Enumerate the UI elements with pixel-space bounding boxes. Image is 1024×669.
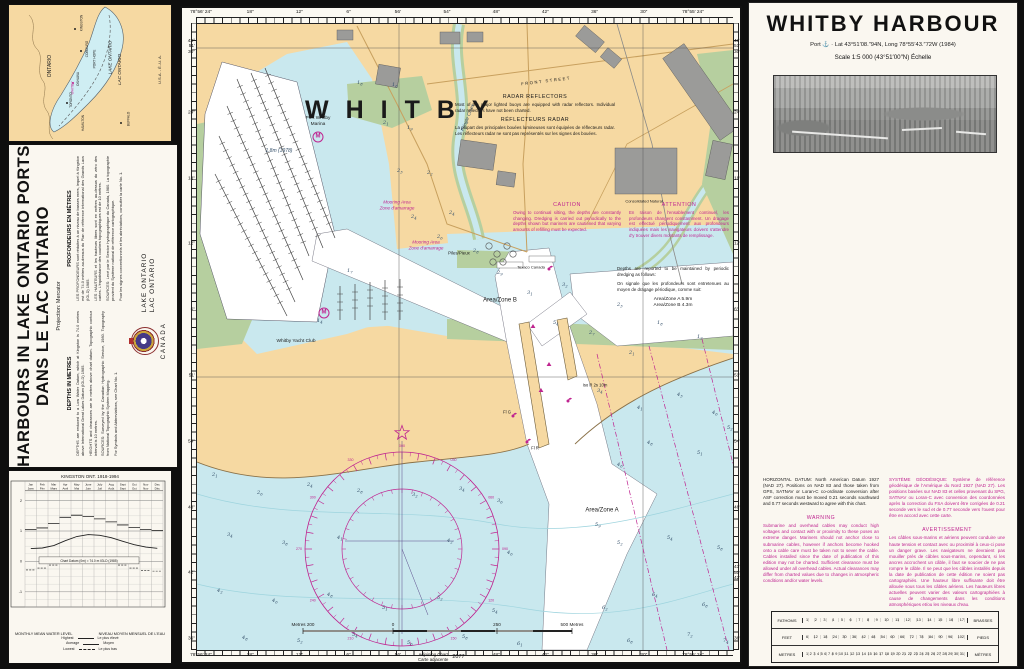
lon-label-bottom: 78°55′ 24″ bbox=[682, 653, 704, 658]
building bbox=[440, 32, 460, 44]
attention-note: ATTENTIONEn raison de l'ensablement cont… bbox=[629, 202, 729, 243]
svg-text:Sept: Sept bbox=[120, 487, 126, 491]
hydrograph-chart: 210-1JanJanvFebFévMarMarsAprAvrilMayMaiJ… bbox=[9, 479, 167, 627]
yacht-club: Whitby Yacht Club bbox=[276, 339, 315, 345]
svg-text:Avril: Avril bbox=[62, 487, 68, 491]
lat-label-right: 12″ bbox=[734, 242, 745, 247]
svg-text:Oct: Oct bbox=[132, 487, 137, 491]
svg-text:030: 030 bbox=[451, 458, 457, 462]
lon-label-bottom: 56′ bbox=[395, 653, 401, 658]
lat-label-left: 42″ bbox=[184, 571, 195, 576]
depth-sounding: 58 bbox=[462, 634, 468, 641]
lat-label-left: 43° 51′ 30″ bbox=[184, 39, 195, 55]
note-symbols: For Symbols and Abbreviations, see Chart… bbox=[114, 311, 119, 456]
note-depths: DEPTHS are reduced to a Low Water Datum,… bbox=[76, 311, 86, 456]
svg-text:270: 270 bbox=[296, 547, 302, 551]
svg-text:Fév: Fév bbox=[40, 487, 45, 491]
adjoining-chart-number: 2077 bbox=[452, 654, 464, 661]
depth-sounding: 26 bbox=[256, 490, 263, 497]
series-title: HARBOURS IN LAKE ONTARIO PORTS DANS LE L… bbox=[15, 145, 53, 467]
depth-sounding: 68 bbox=[627, 638, 633, 645]
depth-sounding: 14 bbox=[317, 318, 323, 325]
depths-heading-en: DEPTHS IN METRES bbox=[67, 311, 73, 456]
lon-label-top: 78°56′ 24″ bbox=[190, 10, 212, 15]
svg-text:Déc: Déc bbox=[155, 487, 161, 491]
scalebar-label: 0 bbox=[392, 622, 395, 627]
marina-symbol: M bbox=[319, 308, 330, 319]
breakwater-in-photo bbox=[792, 131, 888, 140]
svg-text:Juil: Juil bbox=[98, 487, 103, 491]
lon-label-bottom: 78°56′ 24″ bbox=[190, 653, 212, 658]
lat-label-left: 18″ bbox=[184, 176, 195, 181]
lat-label-left: 12″ bbox=[184, 242, 195, 247]
depth-sounding: 52 bbox=[617, 540, 623, 547]
main-chart-panel: 78°56′ 24″18″12″6″56′54″48″42″36″30″78°5… bbox=[180, 6, 742, 664]
depth-sounding: 34 bbox=[227, 532, 233, 539]
depth-sounding: 17 bbox=[347, 268, 353, 275]
lat-label-left: 36″ bbox=[184, 637, 195, 642]
depth-sounding: 56 bbox=[407, 640, 413, 647]
depth-sounding: 28 bbox=[356, 488, 363, 495]
water-level-hydrograph-panel: KINGSTON ONT. 1918-1994 210-1JanJanvFebF… bbox=[8, 470, 172, 664]
metres-row: METRES 123456789101112131415161718192021… bbox=[772, 646, 998, 662]
svg-text:330: 330 bbox=[348, 458, 354, 462]
pier-in-photo-2 bbox=[956, 131, 986, 136]
depth-sounding: 31 bbox=[527, 290, 533, 297]
depth-sounding: 46 bbox=[616, 462, 623, 469]
light-flr: Fl R bbox=[531, 445, 539, 450]
depth-sounding: 54 bbox=[492, 608, 498, 615]
pier-in-photo bbox=[902, 127, 942, 131]
pier-2 bbox=[529, 256, 555, 262]
lon-label-top: 54″ bbox=[443, 10, 450, 15]
depth-sounding: 34 bbox=[597, 388, 603, 395]
svg-text:300: 300 bbox=[310, 496, 316, 500]
scalebar-label: Metres 200 bbox=[292, 622, 315, 627]
depth-sounding: 64 bbox=[652, 592, 658, 599]
warning-heading: WARNING bbox=[763, 515, 879, 521]
depth-sounding: 27 bbox=[588, 330, 595, 337]
svg-text:060: 060 bbox=[488, 496, 494, 500]
inset-place-label: LAKE ONTARIO bbox=[107, 41, 112, 75]
canada-label: CANADA bbox=[161, 322, 167, 359]
lon-label-top: 30″ bbox=[640, 10, 647, 15]
inset-place-label: U.S.A. - É.-U. A. bbox=[157, 55, 162, 84]
depth-1978: 1.8m (1978) bbox=[266, 148, 293, 154]
lon-label-bottom: 18″ bbox=[247, 653, 254, 658]
depth-sounding: 43 bbox=[676, 392, 683, 399]
aerial-photo bbox=[773, 75, 997, 153]
lon-label-bottom: 36″ bbox=[591, 653, 598, 658]
inset-place-label: LAC ONTARIO bbox=[117, 54, 122, 85]
building bbox=[467, 32, 483, 42]
zone-a: Area/Zone A bbox=[585, 507, 618, 515]
lat-label-right: 48″ bbox=[734, 505, 745, 510]
depth-sounding: 24 bbox=[410, 214, 417, 221]
inset-place-label: PORT HOPE bbox=[92, 50, 96, 69]
lat-label-right: 24″ bbox=[734, 110, 745, 115]
lon-label-top: 6″ bbox=[346, 10, 350, 15]
adjoining-chart-note: Adjoining Chart Carte adjacente 2077 bbox=[418, 652, 465, 662]
depth-sounding: 32 bbox=[412, 492, 418, 499]
depth-sounding: 21 bbox=[628, 350, 635, 357]
lat-label-left: 54″ bbox=[184, 439, 195, 444]
depth-sounding: 19 bbox=[407, 125, 413, 132]
lon-label-top: 48″ bbox=[493, 10, 500, 15]
depth-sounding: 41 bbox=[636, 405, 643, 412]
inset-place-label: BUFFALO bbox=[126, 112, 130, 127]
warning-body: Submarine and overhead cables may conduc… bbox=[763, 523, 879, 584]
depth-sounding: 46 bbox=[711, 410, 718, 417]
svg-text:0: 0 bbox=[20, 560, 22, 564]
depth-sounding: 22 bbox=[426, 170, 433, 177]
building bbox=[457, 140, 496, 171]
piles: Piles/Pieux bbox=[448, 250, 470, 256]
note-profondeurs: LES PROFONDEURS sont réduites à un nivea… bbox=[76, 156, 91, 301]
depth-sounding: 12 bbox=[697, 334, 703, 341]
light-iso: Iso R 2s 10m bbox=[583, 382, 608, 387]
note-hauteurs: LES HAUTEURS et les hauteurs libres sont… bbox=[94, 156, 104, 301]
marina-symbol: M bbox=[313, 132, 324, 143]
light-flg: Fl G bbox=[503, 409, 511, 414]
lat-label-right: 6″ bbox=[734, 308, 745, 313]
lat-label-right: 43° 51′ 30″ bbox=[734, 39, 745, 55]
chart-datum-note: Chart Datum (0m) = 74.0 m IGLD (1985) bbox=[60, 559, 117, 563]
depth-sounding: 62 bbox=[602, 605, 608, 612]
depth-sounding: 51 bbox=[382, 605, 388, 612]
lat-label-right: 51′ bbox=[734, 373, 745, 378]
lake-ontario-label: LAKE ONTARIO LAC ONTARIO bbox=[141, 253, 158, 313]
svg-text:Juin: Juin bbox=[86, 487, 92, 491]
unit-conversion-scale: FATHOMS 1234567891011121314151617 BRASSE… bbox=[771, 611, 999, 663]
depth-sounding: 42 bbox=[216, 588, 223, 595]
depth-sounding: 48 bbox=[326, 592, 333, 599]
lat-label-left: 6″ bbox=[184, 308, 195, 313]
inset-place-label: KINGSTON bbox=[79, 15, 83, 32]
light-symbol bbox=[512, 415, 515, 418]
svg-text:-1: -1 bbox=[19, 590, 22, 594]
lon-label-bottom: 42″ bbox=[542, 653, 549, 658]
depth-sounding: 51 bbox=[697, 450, 703, 457]
light-symbol bbox=[526, 441, 529, 444]
depth-sounding: 24 bbox=[448, 210, 455, 217]
fathoms-row: FATHOMS 1234567891011121314151617 BRASSE… bbox=[772, 612, 998, 629]
horizontal-datum-note: HORIZONTAL DATUM: North American Datum 1… bbox=[763, 477, 879, 507]
depths-heading-fr: PROFONDEURS EN MÈTRES bbox=[67, 156, 73, 301]
systeme-geodesique-note: SYSTÈME GÉODÉSIQUE: Système de référence… bbox=[889, 477, 1005, 519]
depth-sounding: 54 bbox=[553, 320, 559, 327]
depth-sounding: 46 bbox=[506, 550, 513, 557]
chart-scale: Scale 1:5 000 (43°51′00″N) Échelle bbox=[749, 54, 1017, 61]
depth-sounding: 34 bbox=[459, 486, 465, 493]
building bbox=[496, 171, 516, 187]
depth-sounding: 52 bbox=[297, 638, 303, 645]
svg-text:240: 240 bbox=[310, 599, 316, 603]
lat-label-right: 36″ bbox=[734, 637, 745, 642]
depth-sounding: 42 bbox=[446, 538, 453, 545]
depth-sounding: 46 bbox=[271, 598, 278, 605]
svg-text:1: 1 bbox=[20, 529, 22, 533]
note-sources: SOURCES: Surveyed by the Canadian Hydrog… bbox=[101, 311, 111, 456]
lon-label-top: 42″ bbox=[542, 10, 549, 15]
depth-sounding: 68 bbox=[702, 602, 708, 609]
depth-sounding: 54 bbox=[667, 535, 673, 542]
lon-label-bottom: 30″ bbox=[640, 653, 647, 658]
port-whitby-marina: Port Whitby Marina bbox=[306, 116, 331, 128]
zone-b: Area/Zone B bbox=[483, 297, 517, 305]
svg-text:Janv: Janv bbox=[28, 487, 35, 491]
note-sources-fr: SOURCES: Levé par le Service hydrographi… bbox=[106, 156, 116, 301]
depth-sounding: 74 bbox=[723, 638, 729, 645]
light-symbol bbox=[567, 400, 570, 403]
svg-text:Août: Août bbox=[108, 487, 114, 491]
depth-sounding: 54 bbox=[352, 632, 358, 639]
depth-sounding: 16 bbox=[392, 82, 398, 89]
scalebar-label: 250 bbox=[493, 622, 501, 627]
svg-text:120: 120 bbox=[488, 599, 494, 603]
scalebar-label: 500 Metres bbox=[561, 622, 585, 627]
building bbox=[615, 148, 677, 194]
lat-label-right: 43° 50′ 42″ bbox=[734, 565, 745, 581]
depth-sounding: 18 bbox=[657, 320, 663, 327]
depth-sounding: 48 bbox=[241, 635, 248, 642]
depth-sounding: 52 bbox=[437, 595, 443, 602]
inset-place-label: HAMILTON bbox=[81, 115, 85, 131]
chart-face: 000030060090120150180210240270300330 182… bbox=[196, 23, 734, 651]
note-heights: HEIGHTS and clearances are in metres abo… bbox=[89, 311, 99, 456]
mooring-2: Mooring Area Zone d'amarrage bbox=[409, 239, 444, 250]
lake-ontario-inset-map: ONTARIOLAKE ONTARIOLAC ONTARIOU.S.A. - É… bbox=[8, 4, 172, 142]
depth-sounding: 72 bbox=[687, 632, 693, 639]
mooring-1: Mooring Area Zone d'amarrage bbox=[380, 199, 415, 210]
depth-sounding: 32 bbox=[562, 282, 568, 289]
light-symbol bbox=[548, 268, 551, 271]
lon-label-bottom: 12″ bbox=[296, 653, 303, 658]
lat-label-left: 51′ bbox=[184, 373, 195, 378]
lon-label-top: 12″ bbox=[296, 10, 303, 15]
depth-sounding: 36 bbox=[497, 498, 503, 505]
avertissement-body: Les câbles sous-marins et aériens peuven… bbox=[889, 535, 1005, 608]
svg-text:150: 150 bbox=[451, 636, 457, 640]
dredge-note: Depths are reported to be maintained by … bbox=[617, 266, 729, 308]
caution-note: CAUTIONOwing to continual silting, the d… bbox=[513, 202, 621, 237]
sidebar-title-panel: HARBOURS IN LAKE ONTARIO PORTS DANS LE L… bbox=[8, 144, 178, 468]
lon-label-bottom: 6″ bbox=[346, 653, 350, 658]
depth-sounding: 38 bbox=[282, 540, 288, 547]
port-position: Port ⚓ · Lat 43°51′08.″94N, Long 78°55′4… bbox=[749, 42, 1017, 48]
lon-label-top: 36″ bbox=[591, 10, 598, 15]
texaco: Texaco Canada bbox=[517, 265, 545, 270]
lon-label-bottom: 48″ bbox=[493, 653, 500, 658]
depth-sounding: 48 bbox=[646, 440, 653, 447]
depth-sounding: 23 bbox=[396, 168, 403, 175]
building bbox=[337, 30, 353, 40]
radar-note: RADAR REFLECTORSMost of the major lighte… bbox=[455, 94, 615, 141]
inset-map-drawing bbox=[9, 5, 172, 142]
svg-text:Nov: Nov bbox=[143, 487, 149, 491]
lat-label-left: 24″ bbox=[184, 110, 195, 115]
lat-label-right: 54″ bbox=[734, 439, 745, 444]
depth-sounding: 24 bbox=[306, 482, 313, 489]
depth-sounding: 41 bbox=[336, 535, 343, 542]
chart-title-panel: WHITBY HARBOUR Port ⚓ · Lat 43°51′08.″94… bbox=[748, 2, 1018, 667]
svg-text:Mai: Mai bbox=[74, 487, 79, 491]
inset-place-label: OSHAWA bbox=[76, 72, 80, 86]
depth-sounding: 28 bbox=[472, 248, 479, 255]
svg-text:Mars: Mars bbox=[51, 487, 58, 491]
depth-sounding: 29 bbox=[496, 270, 503, 277]
projection-note: Projection: Mercator bbox=[56, 281, 62, 330]
note-signes: Pour les signes conventionnels et les ab… bbox=[119, 156, 124, 301]
inset-place-label: TORONTO bbox=[69, 92, 73, 108]
depths-column-fr: PROFONDEURS EN MÈTRES LES PROFONDEURS so… bbox=[67, 156, 127, 301]
lon-label-top: 56′ bbox=[395, 10, 401, 15]
depth-sounding: 59 bbox=[595, 522, 601, 529]
depths-column-en: DEPTHS IN METRES DEPTHS are reduced to a… bbox=[67, 311, 127, 456]
svg-text:2: 2 bbox=[20, 499, 22, 503]
lat-label-right: 18″ bbox=[734, 176, 745, 181]
inset-place-label: COBOURG bbox=[85, 41, 89, 57]
hydrograph-legend: HighestLe plus élevéAverageMoyenLowestLe… bbox=[9, 636, 171, 652]
feet-row: FEET 6121824303642485460667278849096102 … bbox=[772, 629, 998, 646]
chart-scan-page: ONTARIOLAKE ONTARIOLAC ONTARIOU.S.A. - É… bbox=[0, 0, 1024, 669]
lat-label-left: 48″ bbox=[184, 505, 195, 510]
inset-place-label: ONTARIO bbox=[47, 55, 53, 77]
depth-sounding: 61 bbox=[517, 641, 523, 648]
lon-label-top: 18″ bbox=[247, 10, 254, 15]
depth-sounding: 18 bbox=[357, 80, 363, 87]
depth-sounding: 52 bbox=[727, 425, 733, 432]
avertissement-heading: AVERTISSEMENT bbox=[889, 527, 1005, 533]
canada-coat-of-arms bbox=[131, 327, 159, 355]
depth-sounding: 21 bbox=[211, 472, 218, 479]
harbour-title: WHITBY HARBOUR bbox=[749, 11, 1017, 37]
lon-label-top: 78°55′ 24″ bbox=[682, 10, 704, 15]
depth-sounding: 58 bbox=[717, 545, 723, 552]
